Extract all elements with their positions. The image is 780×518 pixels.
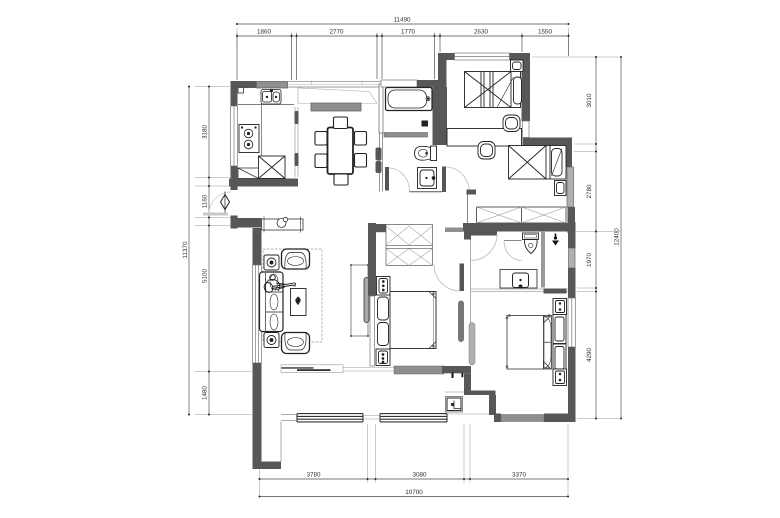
svg-text:5100: 5100 <box>202 269 209 284</box>
svg-text:3780: 3780 <box>306 472 321 479</box>
svg-text:3180: 3180 <box>202 125 209 140</box>
svg-text:1480: 1480 <box>202 386 209 401</box>
svg-text:1860: 1860 <box>257 29 272 36</box>
svg-text:11370: 11370 <box>182 241 189 259</box>
svg-text:2770: 2770 <box>329 29 344 36</box>
svg-text:2780: 2780 <box>586 184 593 199</box>
svg-text:4290: 4290 <box>586 348 593 363</box>
svg-text:3010: 3010 <box>586 93 593 108</box>
svg-text:11490: 11490 <box>393 17 411 24</box>
svg-text:2630: 2630 <box>474 29 489 36</box>
svg-text:3080: 3080 <box>412 472 427 479</box>
svg-text:1970: 1970 <box>586 253 593 268</box>
svg-text:12400: 12400 <box>614 228 621 246</box>
svg-text:1160: 1160 <box>202 194 209 208</box>
svg-text:3370: 3370 <box>512 472 527 479</box>
svg-text:1550: 1550 <box>538 29 553 36</box>
svg-text:10700: 10700 <box>405 489 423 496</box>
svg-text:1770: 1770 <box>401 29 416 36</box>
